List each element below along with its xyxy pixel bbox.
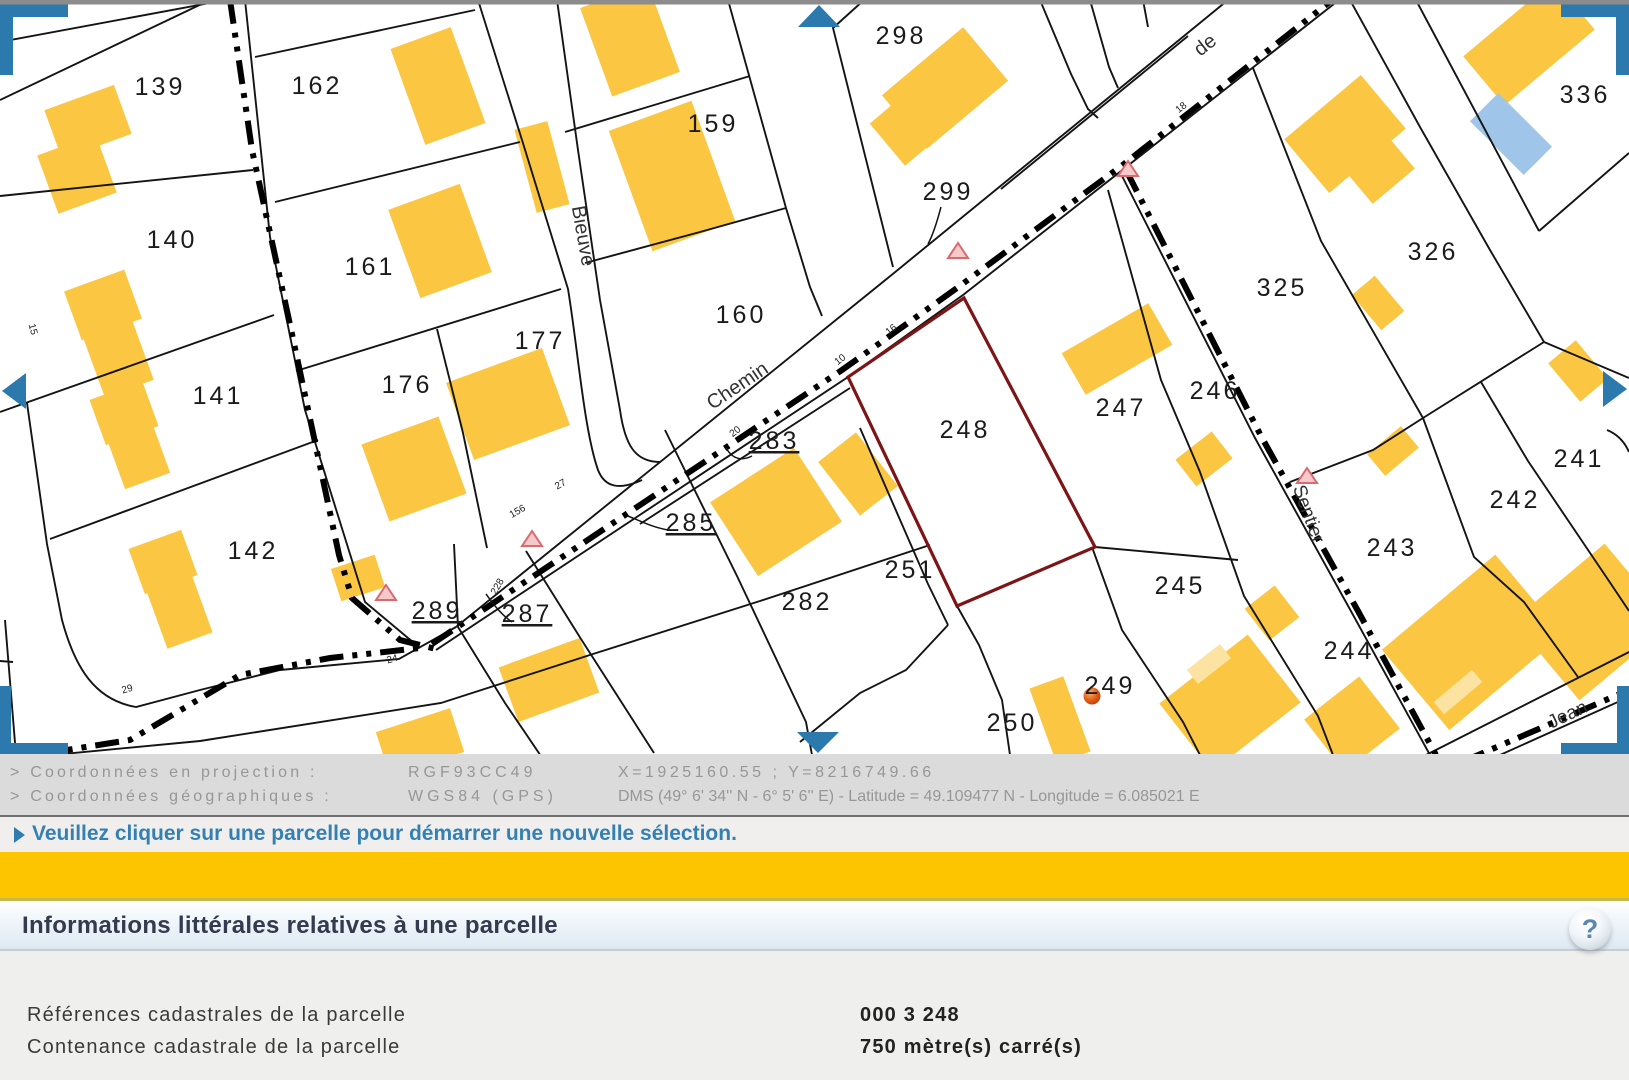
svg-text:162: 162 (292, 72, 343, 100)
svg-text:247: 247 (1096, 394, 1147, 422)
svg-text:248: 248 (940, 416, 991, 444)
svg-text:159: 159 (688, 110, 739, 138)
svg-text:336: 336 (1560, 81, 1611, 109)
svg-text:326: 326 (1408, 238, 1459, 266)
svg-text:250: 250 (987, 709, 1038, 737)
svg-text:246: 246 (1190, 377, 1241, 405)
svg-text:245: 245 (1155, 572, 1206, 600)
svg-text:325: 325 (1257, 274, 1308, 302)
svg-text:289: 289 (412, 597, 463, 625)
svg-text:249: 249 (1085, 672, 1136, 700)
svg-text:244: 244 (1324, 637, 1375, 665)
svg-text:139: 139 (135, 73, 186, 101)
svg-text:282: 282 (782, 588, 833, 616)
svg-text:176: 176 (382, 371, 433, 399)
svg-text:161: 161 (345, 253, 396, 281)
svg-text:251: 251 (885, 556, 936, 584)
svg-text:241: 241 (1554, 445, 1605, 473)
svg-text:142: 142 (228, 537, 279, 565)
svg-text:299: 299 (923, 178, 974, 206)
svg-text:283: 283 (749, 427, 800, 455)
svg-text:177: 177 (515, 327, 566, 355)
svg-text:242: 242 (1490, 486, 1541, 514)
svg-text:285: 285 (666, 509, 717, 537)
svg-text:141: 141 (193, 382, 244, 410)
svg-text:298: 298 (876, 22, 927, 50)
svg-text:140: 140 (147, 226, 198, 254)
svg-text:287: 287 (502, 600, 553, 628)
svg-text:160: 160 (716, 301, 767, 329)
svg-text:243: 243 (1367, 534, 1418, 562)
